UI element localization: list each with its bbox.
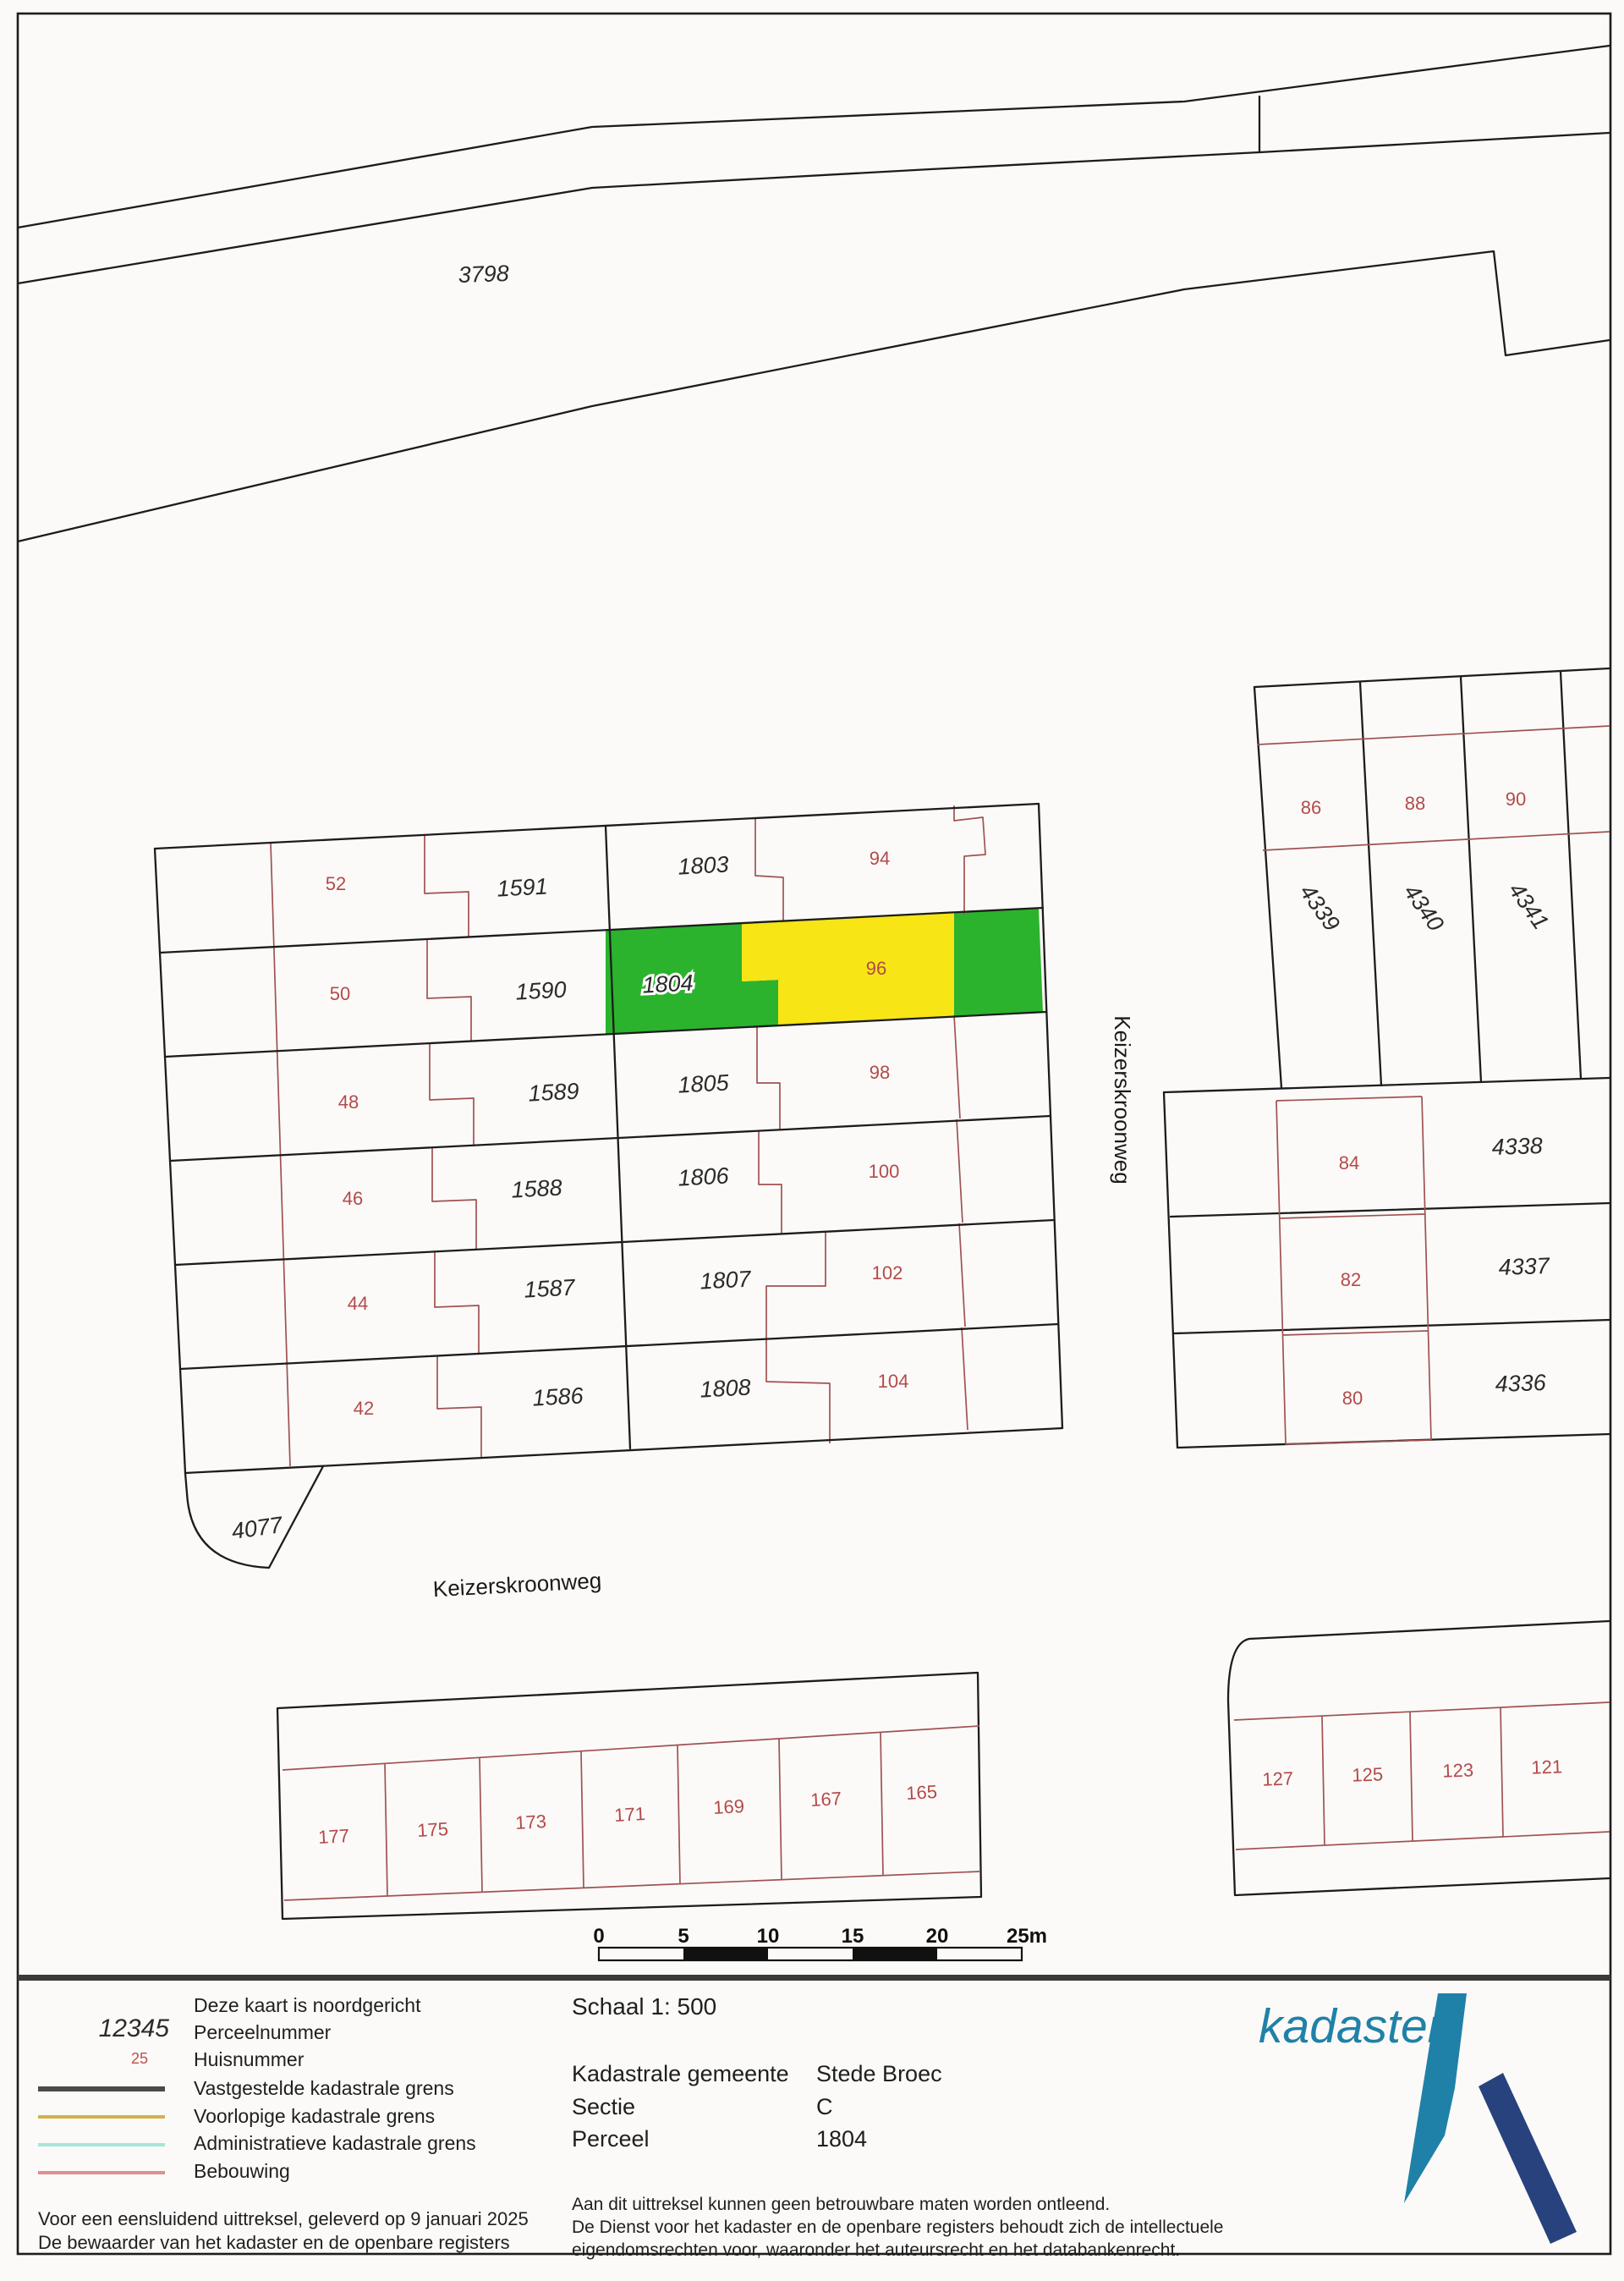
house-number-90: 90 [1506,789,1526,810]
house-number-104: 104 [878,1371,909,1392]
grid-row-line-3 [170,1116,1051,1161]
mid-block-top-edge [1164,1078,1610,1092]
parcel-number-1590: 1590 [515,976,568,1004]
house-number-42: 42 [354,1398,374,1419]
house-number-50: 50 [330,983,350,1004]
info-label-sectie: Sectie [572,2094,635,2120]
building-divider-row-46 [432,1147,476,1249]
scale-segment-black-2 [853,1948,937,1960]
parcel-number-1804-highlighted: 1804 [642,970,694,998]
legend-house-number-sample: 25 [51,2050,148,2068]
legend-swatch-vastgestelde-grens [38,2086,165,2091]
bottom-right-divider-2 [1410,1712,1413,1841]
parcel-number-1806: 1806 [678,1162,731,1190]
legend-swatch-administratieve-grens [38,2143,165,2146]
parcel-number-4339: 4339 [1295,880,1345,936]
bottom-left-block-outline [277,1673,981,1919]
parcel-number-1808: 1808 [700,1374,752,1402]
scale-bar: 0 5 10 15 20 25m [593,1925,1047,1960]
mid-block-building-right [1422,1097,1431,1440]
house-number-86: 86 [1301,797,1321,818]
parcel-number-1586: 1586 [532,1382,585,1410]
legend-house-number-label: Huisnummer [194,2048,304,2071]
house-number-123: 123 [1442,1759,1474,1781]
legend-administratieve-label: Administratieve kadastrale grens [194,2132,476,2155]
house-number-169: 169 [713,1795,745,1818]
parcel-3798-south-boundary [18,251,1610,541]
mid-block-building-top [1276,1097,1422,1101]
scale-tick-20: 20 [926,1925,949,1948]
mid-block-building-left [1276,1101,1286,1444]
info-value-perceel: 1804 [816,2126,867,2152]
parcel-number-1589: 1589 [528,1078,580,1106]
mid-block-left-edge [1164,1092,1177,1448]
legend-vastgestelde-label: Vastgestelde kadastrale grens [194,2077,454,2100]
house-number-102: 102 [872,1262,903,1283]
legend-north-note: Deze kaart is noordgericht [194,1994,420,2017]
page-border [18,14,1610,2254]
scale-tick-0: 0 [593,1925,604,1948]
house-number-82: 82 [1341,1269,1361,1290]
parcel-number-1807: 1807 [700,1266,753,1294]
parcel-number-1803: 1803 [678,851,730,879]
grid-row-line-5 [180,1324,1058,1369]
legend-footer-line1: Voor een eensluidend uittreksel, gelever… [38,2208,529,2230]
bottom-left-strip-bottom [284,1872,979,1900]
disclaimer-line2: De Dienst voor het kadaster en de openba… [572,2218,1223,2238]
building-line-row-100-right [957,1119,963,1223]
legend-footer-line2: De bewaarder van het kadaster en de open… [38,2232,510,2254]
disclaimer-line3: eigendomsrechten voor, waaronder het aut… [572,2240,1180,2261]
building-divider-row-104 [766,1339,830,1443]
bottom-left-divider-2 [480,1757,482,1892]
parcel-number-4341: 4341 [1504,878,1554,934]
scale-segment-black-1 [683,1948,768,1960]
legend-voorlopige-label: Voorlopige kadastrale grens [194,2105,435,2128]
bottom-left-divider-4 [678,1745,680,1884]
house-number-175: 175 [417,1818,449,1841]
building-outline-row-94-right [954,805,985,915]
road-line-lower [18,133,1610,283]
parcel-number-4336: 4336 [1495,1370,1547,1397]
house-number-165: 165 [906,1781,938,1804]
building-divider-row-100 [759,1130,782,1234]
building-line-row-98-right [954,1015,960,1119]
right-block-divider-3 [1561,672,1581,1079]
legend-bebouwing-label: Bebouwing [194,2160,290,2183]
house-number-125: 125 [1352,1763,1384,1785]
building-divider-row-52 [425,835,469,937]
scale-tick-15: 15 [842,1925,864,1948]
parcel-number-4340: 4340 [1399,880,1449,936]
house-number-98: 98 [870,1062,890,1083]
scale-tick-25m: 25m [1007,1925,1047,1948]
house-number-167: 167 [810,1788,842,1811]
house-number-100: 100 [869,1161,900,1182]
right-block-building-front [1258,726,1610,745]
right-block-top-edge [1254,668,1610,687]
legend-parcel-number-sample: 12345 [51,2014,169,2043]
parcel-number-1587: 1587 [524,1274,577,1302]
cadastral-extract-page: 3798 [0,0,1624,2281]
bottom-right-strip-top [1234,1702,1610,1720]
building-divider-row-48 [430,1043,474,1145]
building-divider-row-94 [755,818,783,921]
building-divider-row-102 [766,1231,826,1339]
kadaster-logo-wordmark: kadaster [1259,1998,1444,2054]
parcel-number-1805: 1805 [678,1069,731,1097]
building-divider-row-42 [437,1355,481,1457]
building-line-row-102-right [959,1223,965,1327]
street-label-keizerskroonweg-vertical: Keizerskroonweg [1110,1015,1135,1184]
house-number-88: 88 [1405,793,1425,814]
mid-block-building-bottom [1286,1440,1431,1444]
house-number-127: 127 [1262,1767,1294,1789]
legend-parcel-number-label: Perceelnummer [194,2021,331,2044]
house-number-171: 171 [614,1803,646,1826]
disclaimer-line1: Aan dit uittreksel kunnen geen betrouwba… [572,2195,1110,2215]
info-label-perceel: Perceel [572,2126,650,2152]
parcel-number-1588: 1588 [511,1174,563,1202]
building-divider-row-50 [427,939,471,1041]
parcel-number-4338: 4338 [1491,1133,1543,1160]
street-label-keizerskroonweg-horizontal: Keizerskroonweg [432,1568,602,1602]
scale-tick-5: 5 [678,1925,689,1948]
bottom-right-strip-bottom [1236,1832,1610,1850]
house-number-177: 177 [318,1825,350,1848]
parcel-1804-highlight-green-right [954,908,1043,1016]
info-label-kadastrale-gemeente: Kadastrale gemeente [572,2061,789,2087]
building-divider-row-98 [757,1026,780,1130]
building-divider-row-44 [435,1251,479,1353]
bottom-left-divider-1 [385,1763,387,1896]
bottom-left-divider-3 [581,1751,584,1888]
parcel-number-1591: 1591 [497,873,549,901]
mid-block-building-split-1 [1279,1214,1424,1218]
house-number-121: 121 [1531,1756,1563,1778]
info-value-kadastrale-gemeente: Stede Broec [816,2061,942,2087]
parcel-number-4337: 4337 [1498,1253,1550,1280]
grid-row-line-4 [175,1220,1054,1265]
grid-row-line-0 [155,804,1039,849]
cadastral-map: 3798 [0,0,1624,2281]
house-number-48: 48 [338,1091,359,1113]
house-number-52: 52 [326,873,346,894]
right-block-left-edge [1254,687,1281,1088]
right-block-divider-1 [1360,682,1381,1086]
parcel-number-4077: 4077 [230,1512,285,1544]
road-line-upper [18,46,1610,228]
house-number-44: 44 [348,1293,368,1314]
scale-tick-10: 10 [757,1925,780,1948]
bottom-left-divider-5 [779,1739,782,1880]
legend-swatch-bebouwing [38,2171,165,2174]
house-number-96: 96 [866,958,886,979]
panel-separator-line [18,1975,1610,1981]
house-number-84: 84 [1339,1152,1359,1173]
info-value-sectie: C [816,2094,833,2120]
bottom-right-divider-3 [1501,1707,1503,1837]
scale-bar-outline [599,1948,1022,1960]
kadaster-logo-mark-blue [1479,2073,1577,2244]
bottom-left-divider-6 [881,1732,883,1876]
house-number-173: 173 [515,1811,547,1833]
scale-text: Schaal 1: 500 [572,1993,716,2020]
house-number-46: 46 [343,1188,363,1209]
right-block-divider-2 [1461,677,1481,1082]
house-number-80: 80 [1342,1388,1363,1409]
building-line-row-104-right [962,1327,968,1430]
legend-swatch-voorlopige-grens [38,2115,165,2119]
mid-block-building-split-2 [1282,1331,1428,1335]
right-block-building-back [1263,832,1610,850]
parcel-number-3798: 3798 [458,261,509,288]
bottom-right-divider-1 [1322,1716,1325,1845]
house-number-94: 94 [870,848,890,869]
grid-row-line-6 [185,1428,1062,1473]
bottom-left-strip-top [283,1726,979,1770]
